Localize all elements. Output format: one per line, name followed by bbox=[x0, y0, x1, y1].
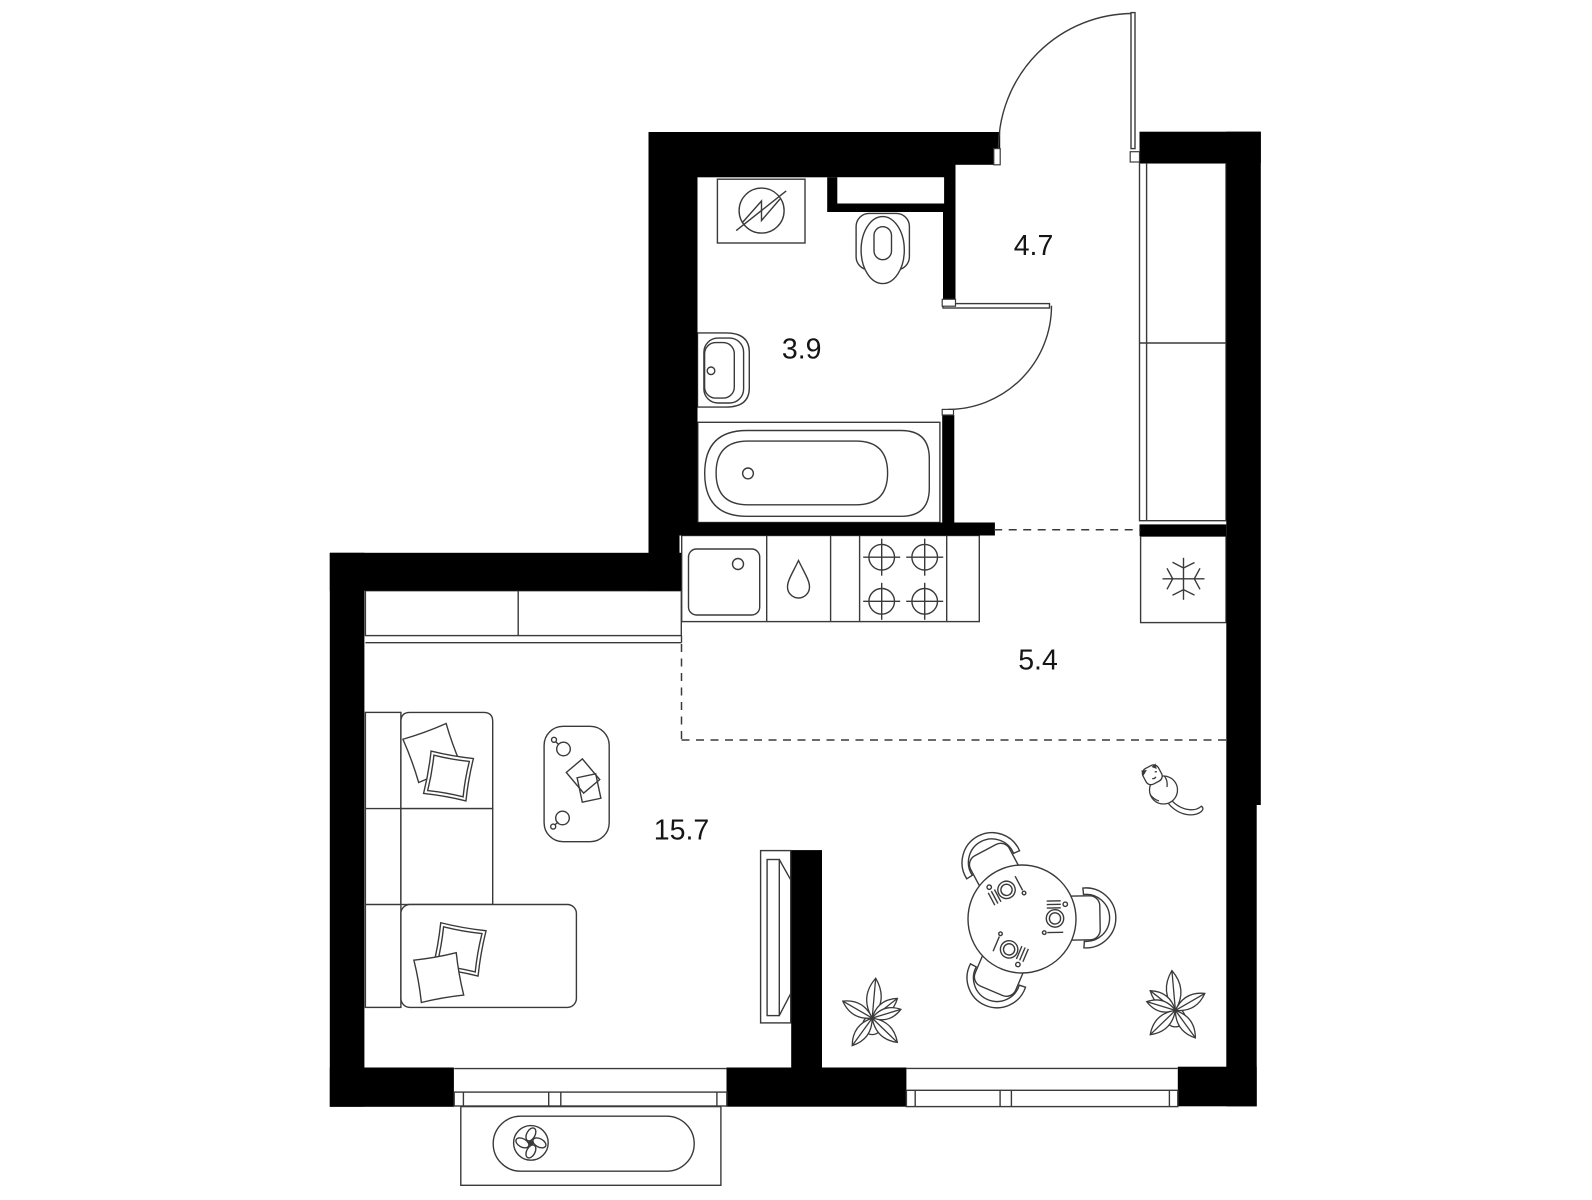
svg-text:3.9: 3.9 bbox=[782, 333, 822, 365]
svg-text:4.7: 4.7 bbox=[1014, 230, 1054, 262]
svg-text:15.7: 15.7 bbox=[654, 815, 709, 847]
svg-text:5.4: 5.4 bbox=[1018, 645, 1058, 677]
